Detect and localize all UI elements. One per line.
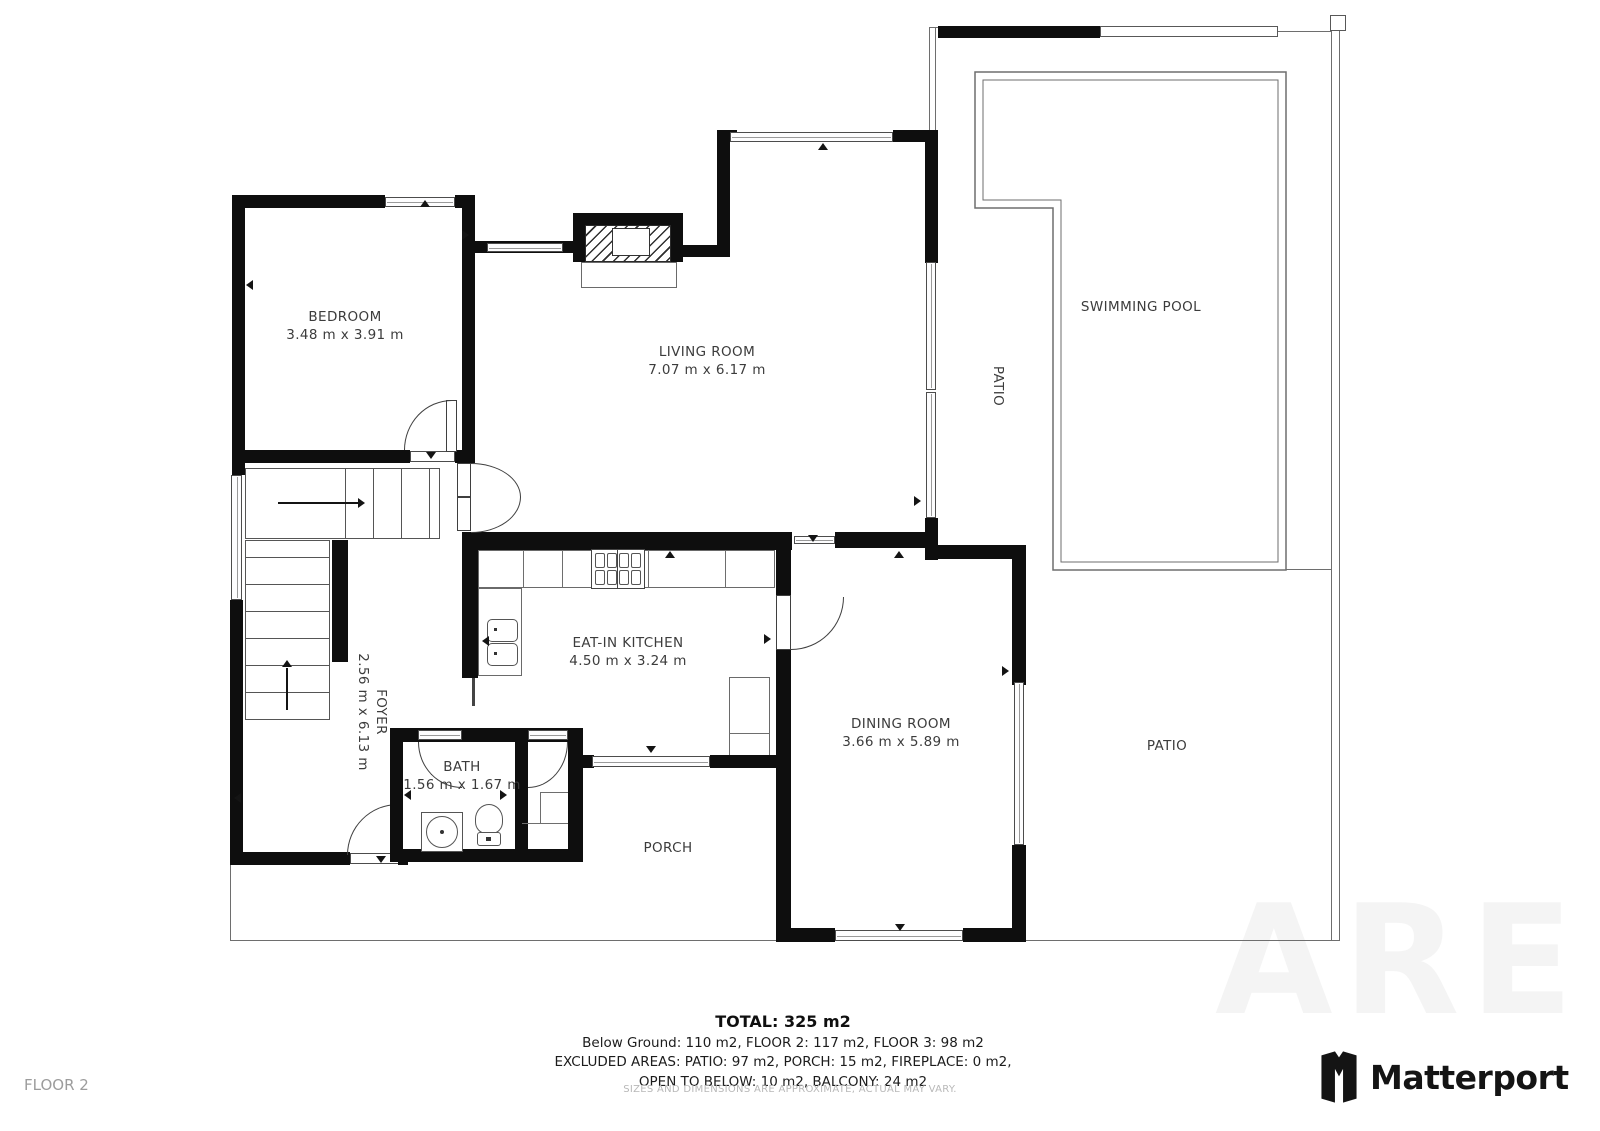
- kitchen-sink-basin: [487, 619, 518, 642]
- wall-segment: [455, 450, 475, 463]
- total-area: TOTAL: 325 m2: [0, 1012, 1566, 1031]
- room-name: FOYER: [371, 653, 389, 771]
- closet-window: [528, 730, 568, 740]
- wall-segment: [963, 928, 1026, 942]
- stair-wall-stub: [332, 540, 348, 662]
- room-name: BATH: [403, 759, 521, 777]
- room-name: EAT-IN KITCHEN: [569, 635, 687, 653]
- patio-boundary-line: [1339, 31, 1340, 940]
- burner: [619, 553, 629, 568]
- marker-arrow: [665, 551, 675, 558]
- fireplace-firebox: [612, 228, 650, 256]
- room-name: SWIMMING POOL: [1081, 299, 1201, 317]
- stove: [591, 549, 645, 589]
- dining-room-label: DINING ROOM 3.66 m x 5.89 m: [842, 716, 960, 752]
- marker-arrow: [818, 143, 828, 150]
- marker-arrow: [376, 856, 386, 863]
- wall-segment: [232, 195, 385, 208]
- sink-dot: [494, 652, 497, 655]
- fireplace-wall: [671, 225, 683, 262]
- closet-door-arc: [471, 497, 521, 533]
- counter-divider: [562, 550, 563, 588]
- floorplan-canvas: ARE BEDROOM 3.48 m x 3.91 m: [0, 0, 1600, 1131]
- burner: [607, 553, 617, 568]
- porch-label: PORCH: [643, 840, 692, 858]
- living-room-window: [730, 132, 893, 142]
- kitchen-island: [729, 677, 770, 763]
- swimming-pool-label: SWIMMING POOL: [1081, 299, 1201, 317]
- wall-segment: [717, 130, 730, 257]
- pool-edge-line: [1286, 569, 1331, 570]
- foyer-label: FOYER 2.56 m x 6.13 m: [353, 653, 389, 771]
- patio-boundary-line: [230, 865, 231, 941]
- marker-arrow: [500, 790, 507, 800]
- stair-arrow: [282, 660, 292, 667]
- wall-segment: [462, 532, 792, 550]
- dining-door-arc: [791, 597, 844, 650]
- kitchen-label: EAT-IN KITCHEN 4.50 m x 3.24 m: [569, 635, 687, 671]
- closet-door-panel: [457, 463, 471, 497]
- wall-segment: [232, 450, 410, 463]
- patio-side-label: PATIO: [988, 366, 1006, 406]
- room-name: BEDROOM: [286, 309, 404, 327]
- toilet-bowl: [475, 804, 503, 834]
- burner: [619, 570, 629, 585]
- dining-window: [1014, 682, 1024, 845]
- marker-arrow: [1002, 666, 1009, 676]
- room-name: PORCH: [643, 840, 692, 858]
- dining-door-panel: [776, 595, 791, 650]
- wall-segment: [835, 532, 938, 548]
- counter-divider: [725, 550, 726, 588]
- wall-segment: [938, 545, 1014, 559]
- side-window: [487, 243, 563, 252]
- room-name: PATIO: [988, 366, 1006, 406]
- wall-segment: [776, 548, 791, 595]
- burner: [607, 570, 617, 585]
- toilet-dot: [486, 837, 491, 841]
- room-dims: 3.48 m x 3.91 m: [286, 327, 404, 345]
- foyer-window: [231, 475, 242, 600]
- sink-dot: [440, 830, 444, 834]
- wall-segment: [925, 130, 938, 263]
- closet-door-arc: [528, 742, 568, 788]
- wall-segment: [230, 852, 350, 865]
- wall-segment: [710, 755, 776, 768]
- marker-arrow: [462, 230, 469, 240]
- wall-segment: [1012, 545, 1026, 685]
- marker-arrow: [426, 452, 436, 459]
- marker-arrow: [482, 636, 489, 646]
- closet-step: [540, 792, 541, 823]
- stove-divider: [617, 549, 618, 589]
- closet-step: [522, 823, 568, 824]
- wall-segment: [390, 849, 583, 862]
- burner: [595, 553, 605, 568]
- patio-corner-post: [1330, 15, 1346, 31]
- fireplace-hearth: [581, 262, 677, 288]
- wall-segment: [925, 532, 938, 560]
- fireplace-wall: [573, 213, 683, 225]
- room-dims: 2.56 m x 6.13 m: [353, 653, 371, 771]
- marker-arrow: [246, 280, 253, 290]
- matterport-logo: Matterport: [1316, 1050, 1569, 1104]
- patio-bottom-label: PATIO: [1147, 738, 1187, 756]
- kitchen-sink-basin: [487, 643, 518, 666]
- kitchen-door-leaf: [472, 678, 475, 706]
- wall-segment: [776, 650, 791, 942]
- room-dims: 3.66 m x 5.89 m: [842, 734, 960, 752]
- stair-arrow: [358, 498, 365, 508]
- living-room-window: [926, 392, 936, 518]
- wall-segment: [232, 195, 245, 475]
- patio-boundary-line: [1331, 31, 1332, 940]
- wall-segment: [462, 548, 478, 678]
- room-dims: 4.50 m x 3.24 m: [569, 653, 687, 671]
- bedroom-label: BEDROOM 3.48 m x 3.91 m: [286, 309, 404, 345]
- stair-direction-line: [278, 502, 358, 504]
- patio-boundary-line: [1278, 31, 1331, 32]
- marker-arrow: [895, 924, 905, 931]
- marker-arrow: [808, 535, 818, 542]
- room-name: DINING ROOM: [842, 716, 960, 734]
- marker-arrow: [234, 793, 241, 803]
- kitchen-window: [592, 756, 710, 767]
- burner: [631, 553, 641, 568]
- stair-direction-line: [286, 668, 288, 710]
- counter-divider: [523, 550, 524, 588]
- patio-boundary-line: [929, 27, 930, 131]
- matterport-logo-text: Matterport: [1370, 1058, 1569, 1097]
- patio-boundary-line: [935, 27, 936, 131]
- living-room-window: [926, 262, 936, 390]
- living-room-label: LIVING ROOM 7.07 m x 6.17 m: [648, 344, 766, 380]
- burner: [595, 570, 605, 585]
- marker-arrow: [764, 634, 771, 644]
- sink-dot: [494, 628, 497, 631]
- marker-arrow: [894, 551, 904, 558]
- island-divider: [729, 733, 770, 734]
- wall-segment: [390, 728, 403, 862]
- room-dims: 7.07 m x 6.17 m: [648, 362, 766, 380]
- burner: [631, 570, 641, 585]
- dining-window: [835, 930, 963, 941]
- fireplace-wall: [573, 225, 585, 262]
- closet-step: [540, 792, 568, 793]
- wall-segment: [683, 245, 730, 257]
- marker-arrow: [646, 746, 656, 753]
- wall-segment: [230, 600, 243, 865]
- room-name: LIVING ROOM: [648, 344, 766, 362]
- bath-window: [418, 730, 462, 740]
- floor-areas: Below Ground: 110 m2, FLOOR 2: 117 m2, F…: [0, 1035, 1566, 1051]
- room-name: PATIO: [1147, 738, 1187, 756]
- marker-arrow: [404, 790, 411, 800]
- closet-door-arc: [471, 463, 521, 497]
- counter-divider: [648, 550, 649, 588]
- wall-segment: [776, 928, 835, 942]
- marker-arrow: [914, 496, 921, 506]
- closet-door-panel: [457, 497, 471, 531]
- bedroom-door-arc: [404, 400, 452, 450]
- wall-segment: [568, 728, 583, 862]
- matterport-logo-icon: [1316, 1050, 1362, 1104]
- patio-fence-strip: [1100, 26, 1278, 37]
- patio-wall-segment: [938, 26, 1100, 38]
- marker-arrow: [420, 200, 430, 207]
